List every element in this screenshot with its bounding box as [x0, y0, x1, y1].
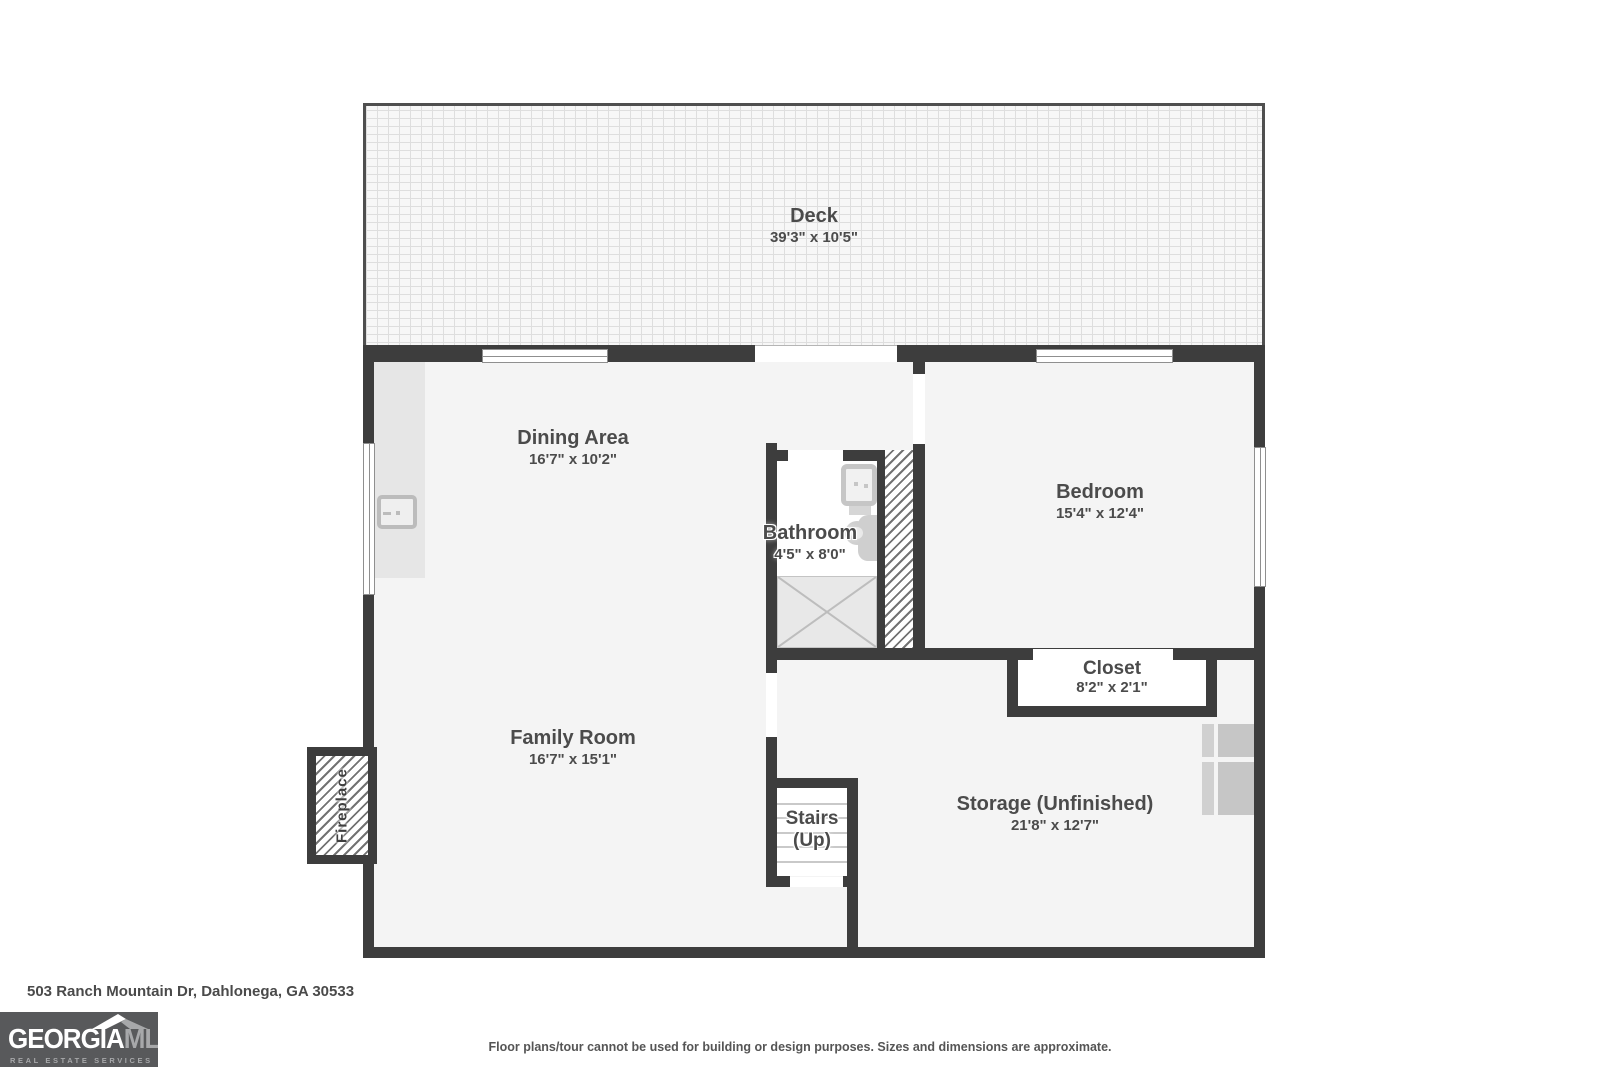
room-label-family: Family Room 16'7" x 15'1" [510, 727, 636, 770]
room-name: Stairs [786, 808, 839, 830]
window-pane-line [369, 444, 370, 594]
room-dims: 8'2" x 2'1" [1076, 679, 1147, 697]
stair-tread [777, 803, 847, 805]
room-dims: 16'7" x 10'2" [517, 450, 629, 470]
wall [1007, 706, 1217, 717]
wall [766, 778, 858, 788]
address-text: 503 Ranch Mountain Dr, Dahlonega, GA 305… [27, 983, 354, 1000]
room-dims: 4'5" x 8'0" [763, 545, 857, 565]
window [1036, 349, 1173, 363]
shower-x-lines [778, 577, 876, 647]
wall [363, 947, 1265, 958]
wall [766, 450, 788, 461]
wall [913, 444, 925, 660]
room-label-deck: Deck 39'3" x 10'5" [770, 205, 858, 248]
toilet-dot [854, 482, 858, 486]
room-dims: 39'3" x 10'5" [770, 228, 858, 248]
roof-icon [92, 1014, 148, 1029]
room-dims: 21'8" x 12'7" [957, 816, 1154, 836]
door-opening [766, 673, 777, 737]
wall [363, 345, 374, 958]
logo-tagline: REAL ESTATE SERVICES [10, 1056, 153, 1065]
room-label-bedroom: Bedroom 15'4" x 12'4" [1056, 481, 1144, 524]
cooktop-mark [383, 512, 391, 515]
utility-unit-strip [1202, 762, 1214, 815]
utility-unit [1218, 762, 1254, 815]
room-label-closet: Closet 8'2" x 2'1" [1076, 658, 1147, 697]
door-opening [790, 877, 843, 887]
wall [847, 778, 858, 958]
fireplace: Fireplace [307, 747, 377, 864]
floor-plan-page: Deck 39'3" x 10'5" [0, 0, 1600, 1067]
window-pane-line [483, 356, 607, 357]
toilet-dot [864, 484, 868, 488]
mls-logo: GEORGIAMLS REAL ESTATE SERVICES [0, 1012, 158, 1067]
room-name: Family Room [510, 727, 636, 750]
room-name: Bathroom [763, 522, 857, 545]
window-pane-line [1260, 448, 1261, 586]
room-label-bathroom: Bathroom 4'5" x 8'0" [763, 522, 857, 565]
cooktop-dot [396, 511, 400, 515]
window [482, 349, 608, 363]
disclaimer-text: Floor plans/tour cannot be used for buil… [488, 1040, 1111, 1054]
door-opening [755, 345, 897, 362]
window [1254, 447, 1266, 587]
room-dims: (Up) [786, 830, 839, 852]
toilet-bowl [849, 506, 871, 515]
utility-unit [1218, 724, 1254, 757]
wall [843, 876, 858, 887]
door-opening [913, 374, 925, 444]
chase-hatch [885, 450, 913, 648]
room-label-stairs: Stairs (Up) [786, 808, 839, 852]
room-dims: 15'4" x 12'4" [1056, 504, 1144, 524]
wall [766, 788, 777, 887]
room-label-storage: Storage (Unfinished) 21'8" x 12'7" [957, 793, 1154, 836]
wall [877, 450, 885, 648]
stair-tread [777, 861, 847, 863]
room-name: Closet [1076, 658, 1147, 679]
room-dims: 16'7" x 15'1" [510, 750, 636, 770]
utility-unit-strip [1202, 724, 1214, 757]
room-name: Deck [770, 205, 858, 228]
wall [766, 876, 790, 887]
shower-pan [777, 576, 877, 648]
door-opening [788, 450, 843, 461]
wall [1254, 345, 1265, 958]
kitchen-counter [374, 362, 425, 578]
wall [766, 737, 777, 778]
room-name: Bedroom [1056, 481, 1144, 504]
window [363, 443, 375, 595]
room-name: Dining Area [517, 427, 629, 450]
room-name: Storage (Unfinished) [957, 793, 1154, 816]
cooktop-icon [377, 495, 417, 529]
wall [766, 660, 777, 673]
toilet-icon [841, 464, 877, 506]
window-pane-line [1037, 356, 1172, 357]
room-label-dining: Dining Area 16'7" x 10'2" [517, 427, 629, 470]
fireplace-label: Fireplace [316, 756, 368, 855]
wall [913, 362, 925, 374]
